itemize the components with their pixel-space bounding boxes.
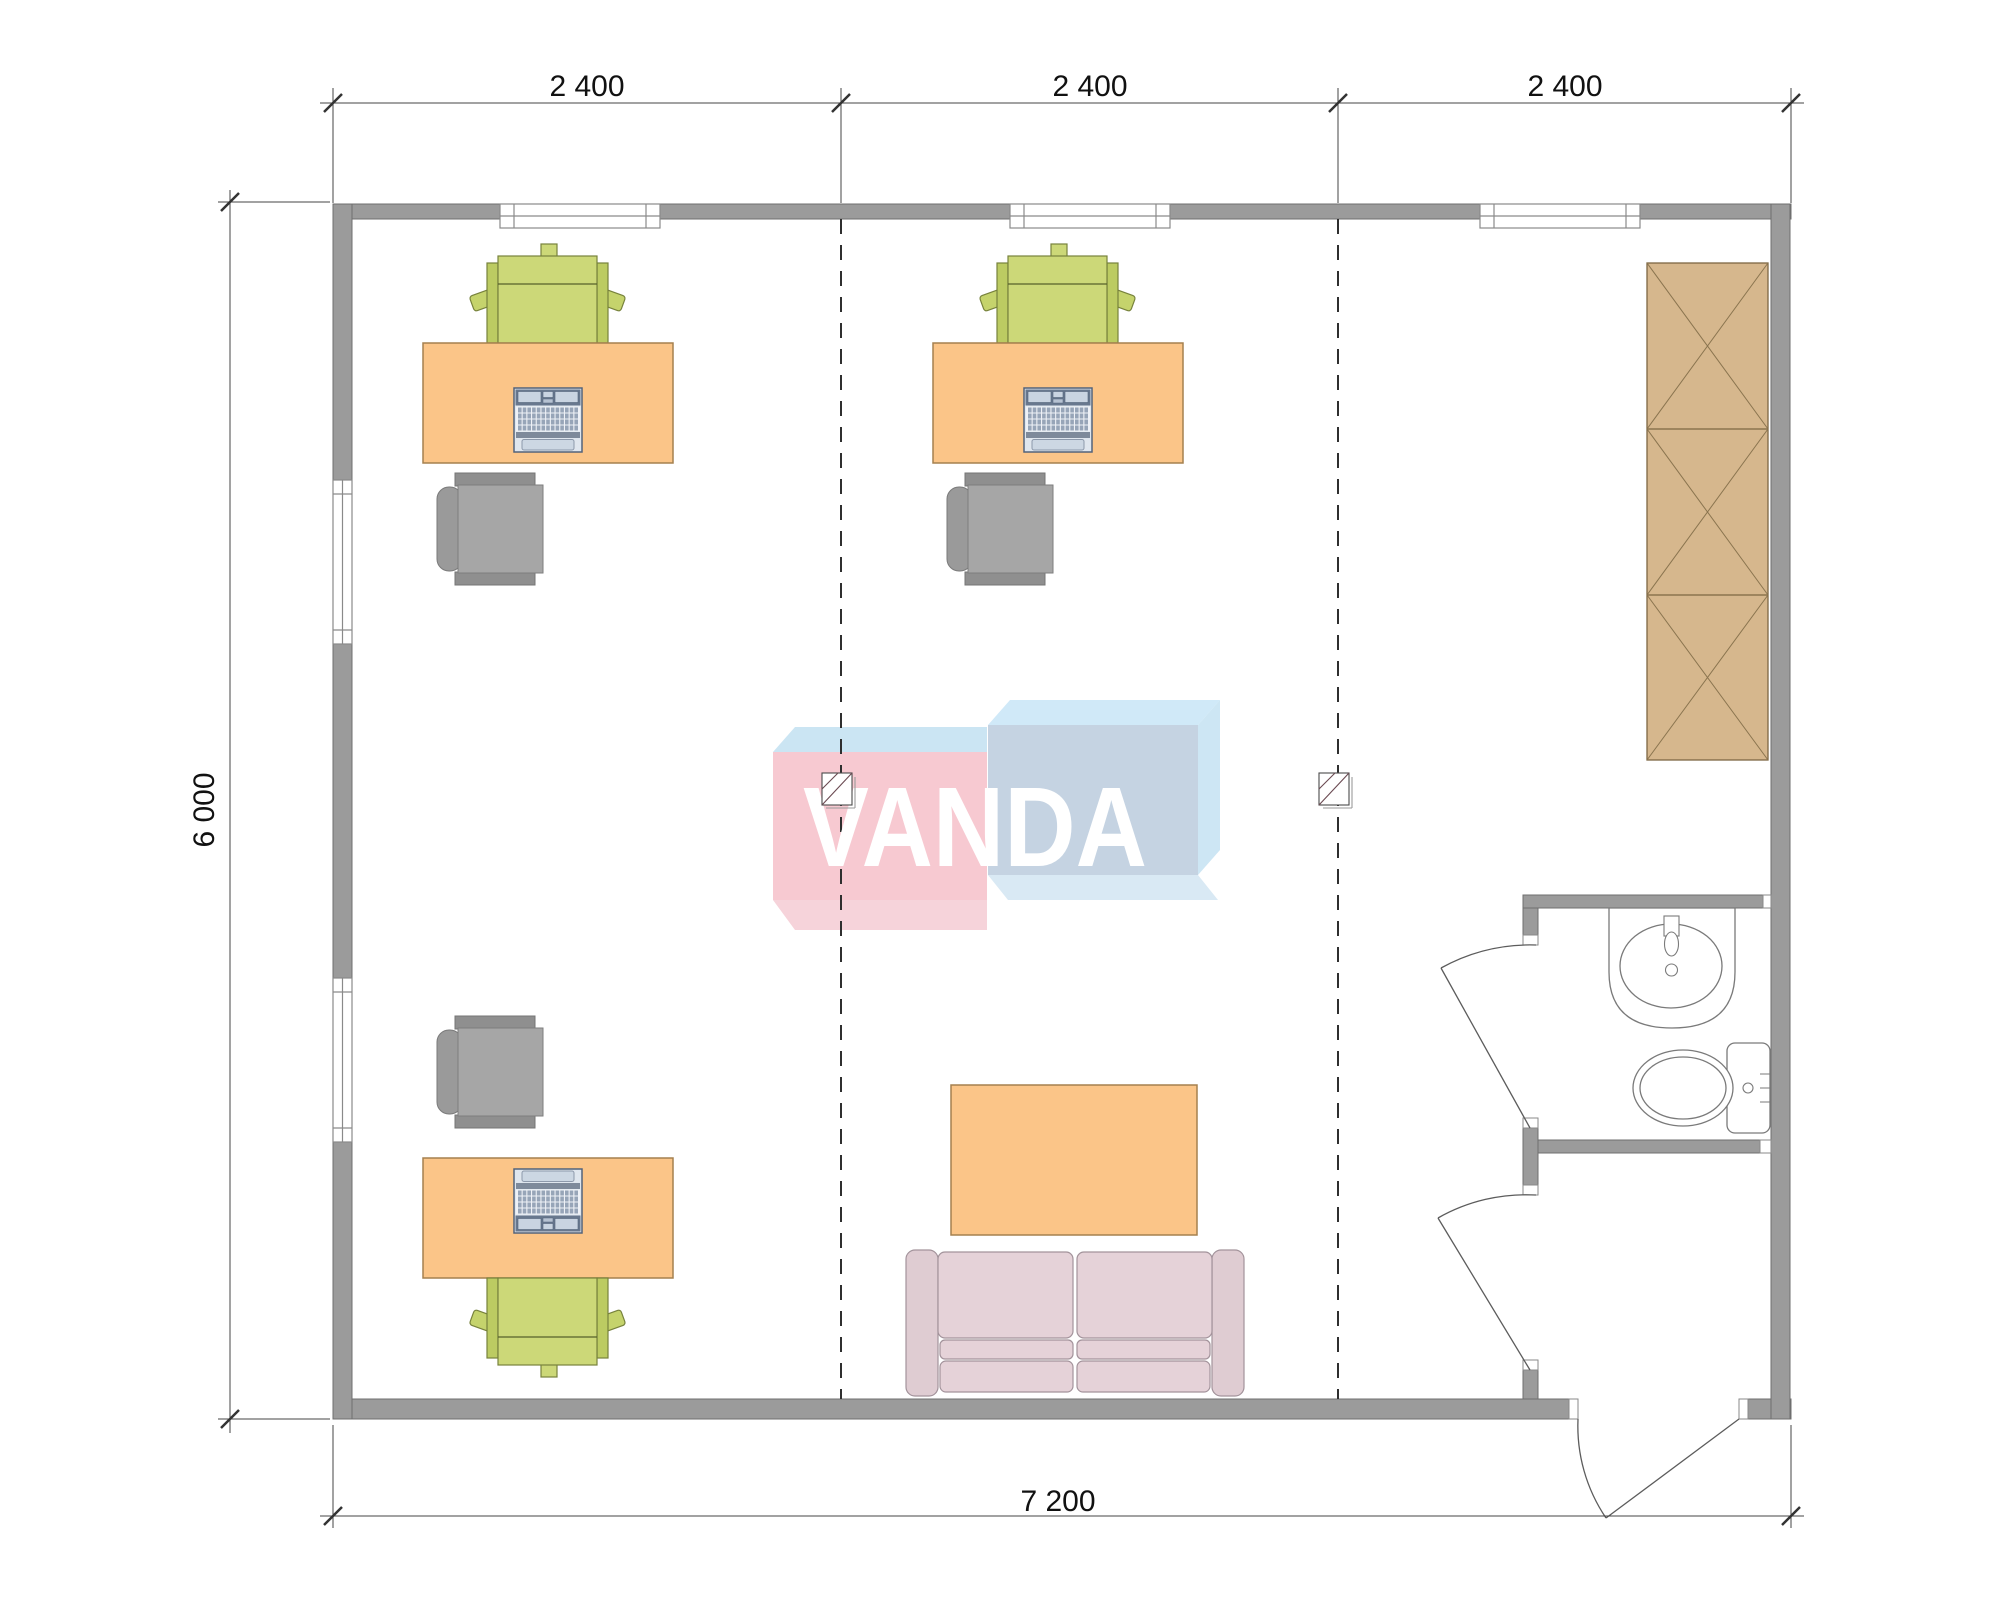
- sofa-back: [1077, 1361, 1210, 1392]
- wall-right: [1771, 204, 1790, 1419]
- wardrobe: [1647, 263, 1768, 760]
- wall-partition-segment: [1523, 908, 1538, 935]
- sofa-cushion: [938, 1252, 1073, 1338]
- sofa-back: [940, 1361, 1073, 1392]
- axis-node-1: [822, 773, 855, 808]
- dimension-top: [320, 88, 1804, 203]
- wall-bathroom-top: [1523, 895, 1763, 908]
- dim-label-top-1: 2 400: [549, 70, 624, 103]
- wall-bathroom-middle: [1538, 1140, 1760, 1153]
- workstation-3: [423, 1016, 673, 1377]
- door-vestibule: [1438, 1195, 1536, 1370]
- door-wc: [1441, 945, 1536, 1128]
- sofa: [906, 1250, 1244, 1396]
- sofa-cushion: [1077, 1252, 1212, 1338]
- toilet: [1633, 1043, 1770, 1133]
- workstation-1: [423, 244, 673, 585]
- workstation-2: [933, 244, 1183, 585]
- coffee-table: [951, 1085, 1197, 1235]
- sofa-back: [940, 1340, 1073, 1359]
- window-top-1: [500, 204, 660, 228]
- dim-label-top-3: 2 400: [1527, 70, 1602, 103]
- dim-label-left: 6 000: [188, 772, 221, 847]
- sofa-armrest: [906, 1250, 938, 1396]
- axis-node-2: [1319, 773, 1352, 808]
- laptop: [514, 388, 582, 452]
- office-chair-green: [469, 1278, 626, 1377]
- entrance-opening: [1569, 1398, 1748, 1420]
- dimension-left: [218, 190, 330, 1433]
- wall-partition-segment: [1523, 1128, 1538, 1185]
- window-top-2: [1010, 204, 1170, 228]
- office-chair-gray: [437, 473, 543, 585]
- door-entrance: [1578, 1419, 1739, 1518]
- laptop: [1024, 388, 1092, 452]
- laptop: [514, 1169, 582, 1233]
- floor-plan-canvas: VANDA 2 400 2 400 2 400 6 000: [0, 0, 2000, 1599]
- dim-label-top-2: 2 400: [1052, 70, 1127, 103]
- wall-left: [333, 204, 352, 1419]
- sink: [1609, 908, 1735, 1028]
- sofa-back: [1077, 1340, 1210, 1359]
- office-chair-gray: [437, 1016, 543, 1128]
- office-chair-green: [979, 244, 1136, 343]
- office-chair-green: [469, 244, 626, 343]
- office-chair-gray: [947, 473, 1053, 585]
- dim-label-bottom: 7 200: [1020, 1485, 1095, 1518]
- window-left-1: [333, 480, 352, 644]
- wall-partition-segment: [1523, 1370, 1538, 1399]
- window-left-2: [333, 978, 352, 1142]
- doors: [1438, 945, 1739, 1518]
- sofa-armrest: [1212, 1250, 1244, 1396]
- window-top-3: [1480, 204, 1640, 228]
